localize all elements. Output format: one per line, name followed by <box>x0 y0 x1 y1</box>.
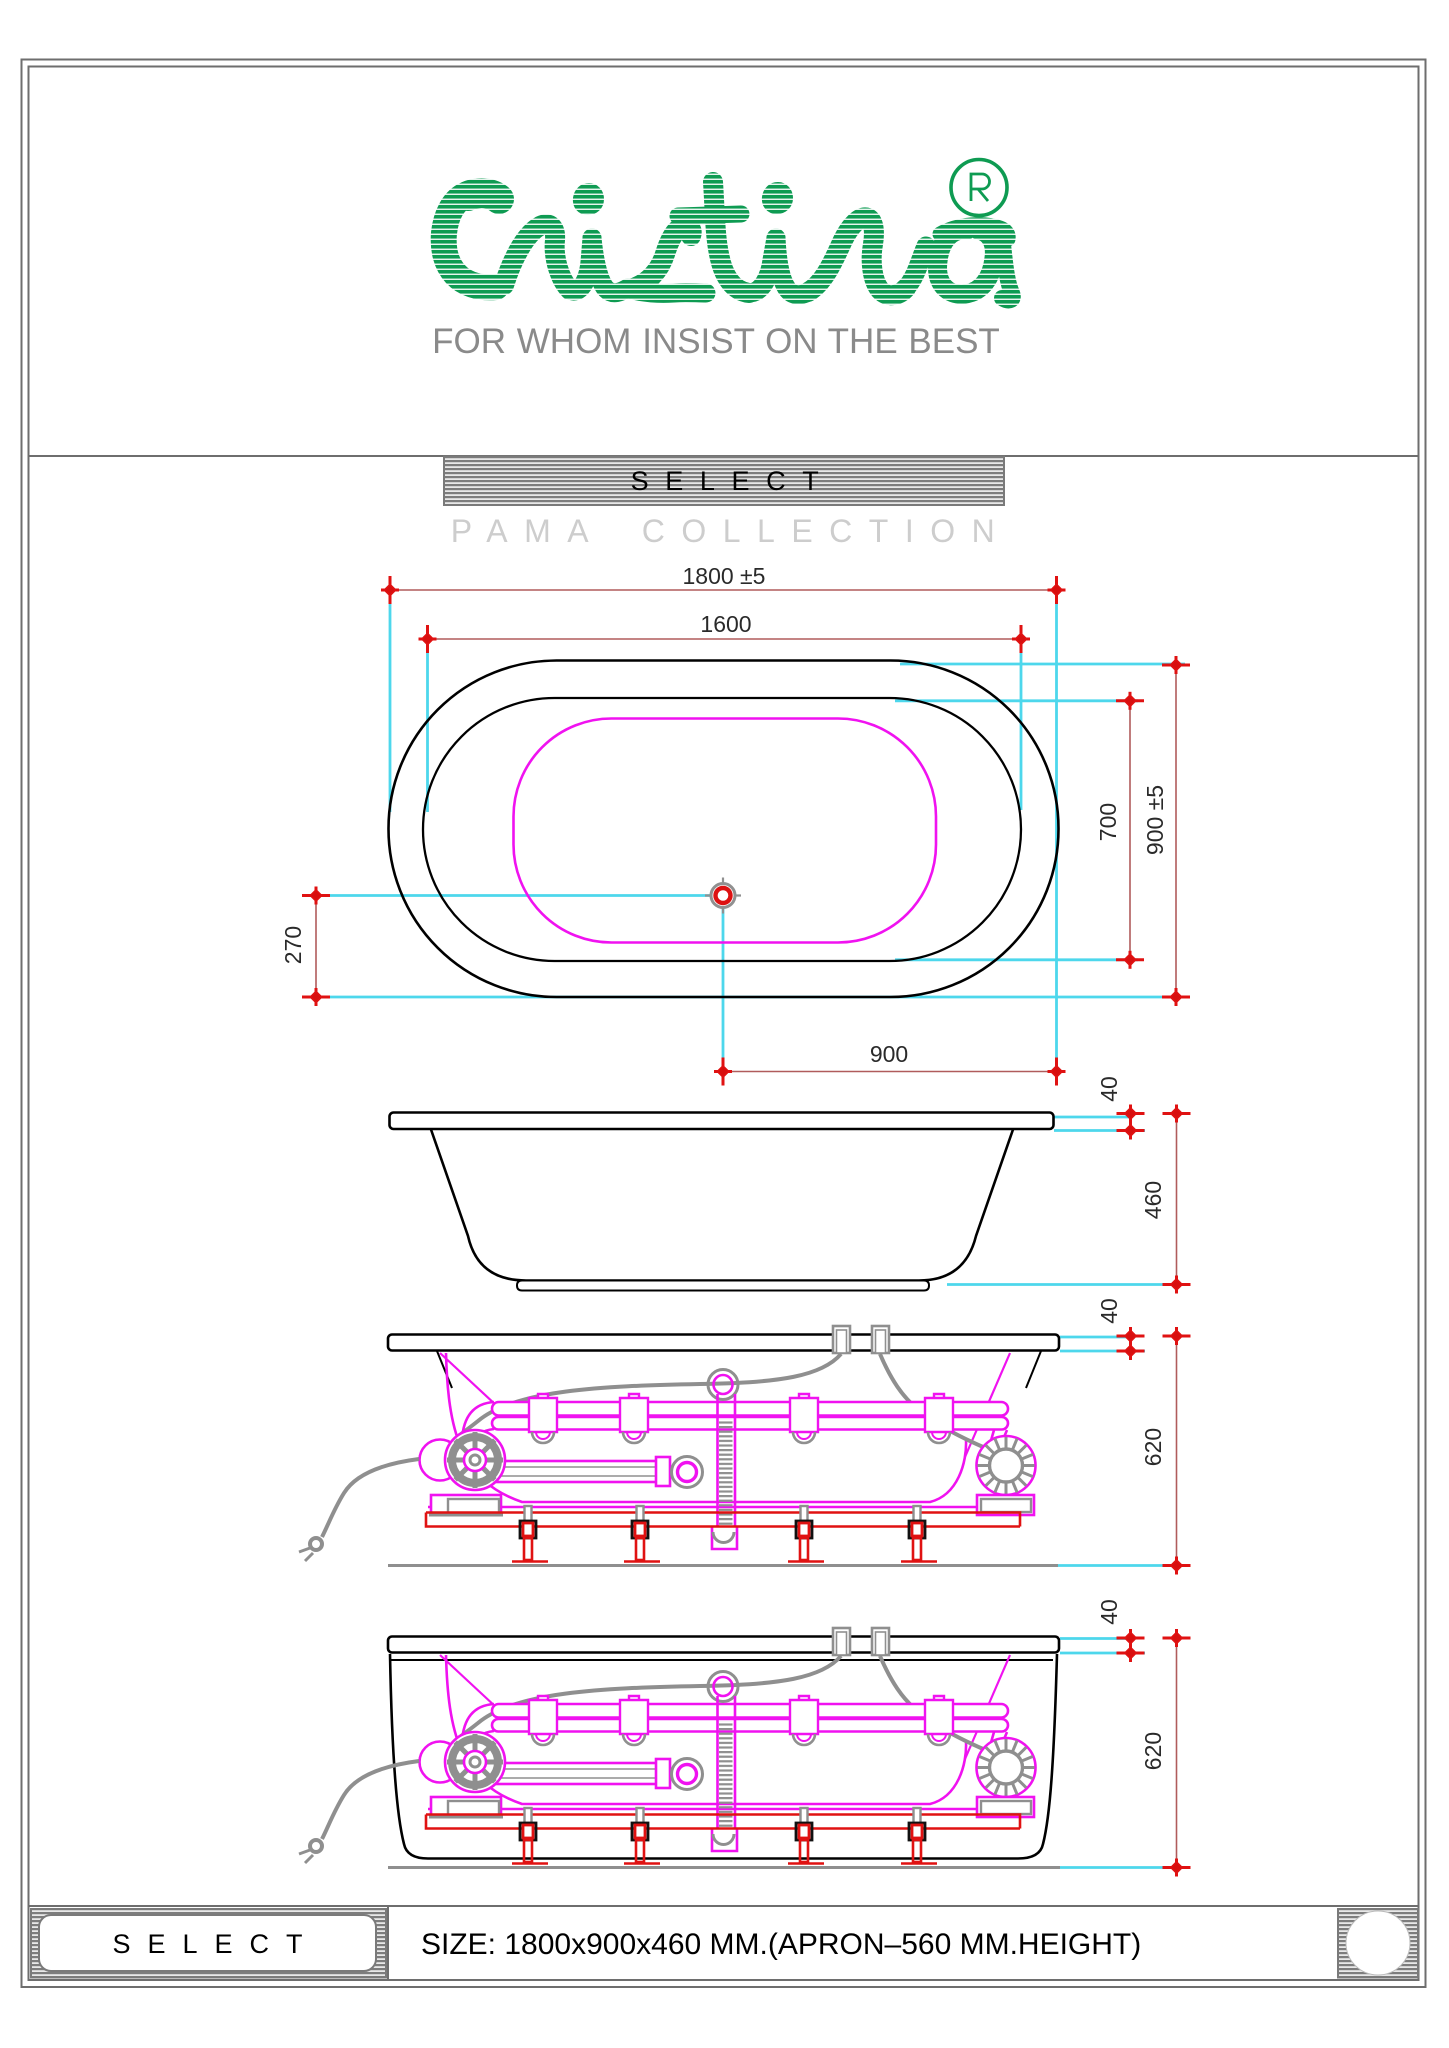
svg-text:SELECT: SELECT <box>112 1929 319 1959</box>
svg-text:270: 270 <box>280 926 306 964</box>
svg-text:620: 620 <box>1140 1428 1166 1466</box>
svg-text:1600: 1600 <box>700 611 751 637</box>
svg-text:40: 40 <box>1096 1298 1122 1324</box>
svg-text:40: 40 <box>1096 1599 1122 1625</box>
svg-text:620: 620 <box>1140 1732 1166 1770</box>
svg-text:PAMA COLLECTION: PAMA COLLECTION <box>451 513 1011 549</box>
svg-text:460: 460 <box>1140 1181 1166 1219</box>
svg-text:900: 900 <box>870 1041 908 1067</box>
svg-text:SIZE: 1800x900x460 MM.(APRON–5: SIZE: 1800x900x460 MM.(APRON–560 MM.HEIG… <box>421 1928 1141 1961</box>
svg-text:40: 40 <box>1096 1076 1122 1102</box>
svg-text:SELECT: SELECT <box>631 466 836 496</box>
svg-text:700: 700 <box>1095 803 1121 841</box>
svg-text:900 ±5: 900 ±5 <box>1142 785 1168 855</box>
svg-text:FOR WHOM INSIST ON THE BEST: FOR WHOM INSIST ON THE BEST <box>432 322 1000 361</box>
svg-text:1800 ±5: 1800 ±5 <box>683 563 766 589</box>
